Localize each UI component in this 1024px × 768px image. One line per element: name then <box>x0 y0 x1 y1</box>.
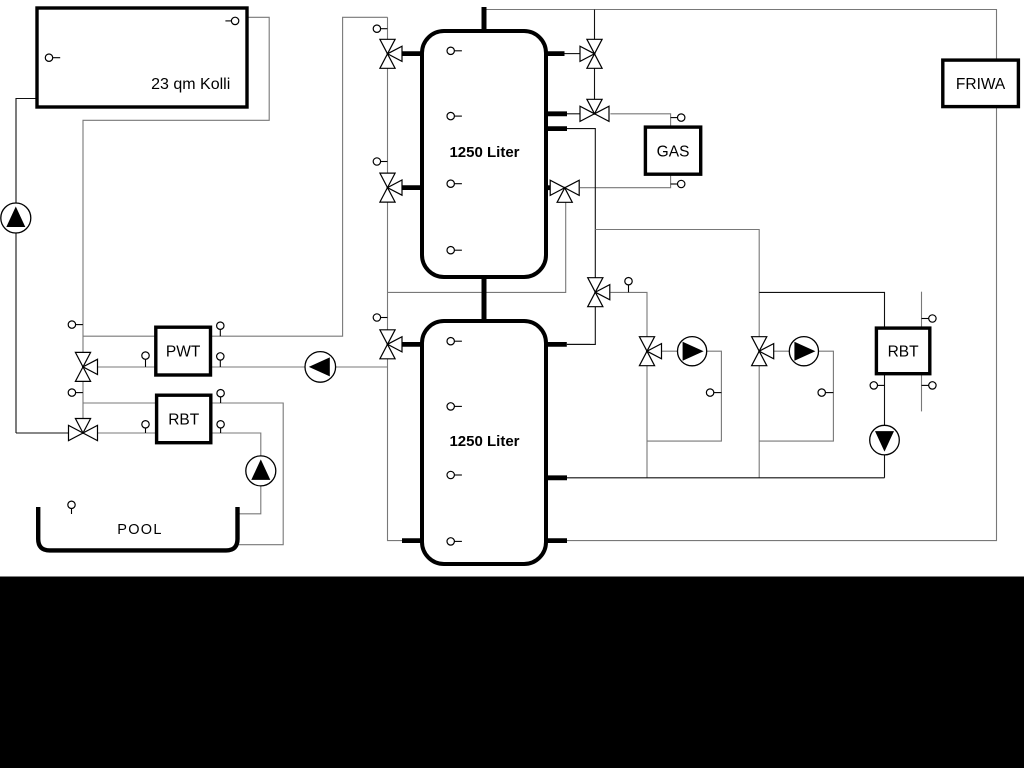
svg-text:FRIWA: FRIWA <box>956 76 1006 93</box>
svg-text:23 qm Kolli: 23 qm Kolli <box>151 76 230 93</box>
svg-text:GAS: GAS <box>657 143 690 160</box>
svg-text:PWT: PWT <box>166 344 201 361</box>
svg-text:RBT: RBT <box>168 412 200 429</box>
svg-text:1250 Liter: 1250 Liter <box>449 144 519 161</box>
svg-text:RBT: RBT <box>888 344 920 361</box>
svg-text:1250 Liter: 1250 Liter <box>449 433 519 450</box>
svg-text:POOL: POOL <box>117 522 163 538</box>
